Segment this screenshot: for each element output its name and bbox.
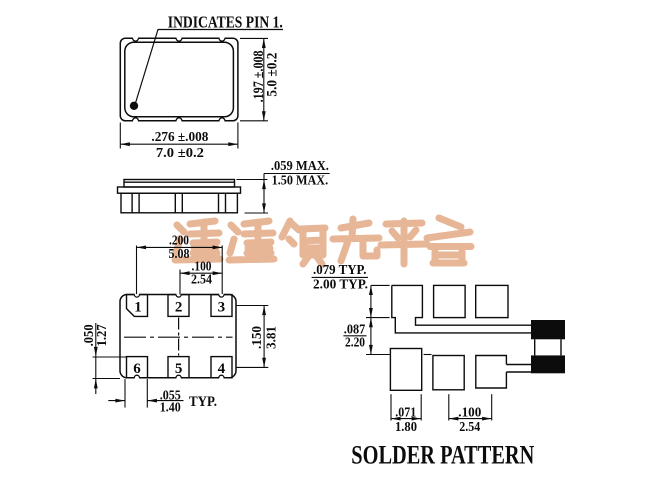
svg-text:1.50 MAX.: 1.50 MAX. [272,174,329,189]
svg-text:1.27: 1.27 [94,324,109,346]
svg-text:SOLDER PATTERN: SOLDER PATTERN [351,440,534,469]
svg-text:TYP.: TYP. [189,394,217,410]
svg-text:7.0 ±0.2: 7.0 ±0.2 [156,145,204,160]
svg-text:.079 TYP.: .079 TYP. [313,263,367,278]
svg-text:.276 ±.008: .276 ±.008 [151,129,208,144]
svg-text:2: 2 [175,300,183,316]
svg-text:5.0 ±0.2: 5.0 ±0.2 [265,53,281,97]
svg-text:.059 MAX.: .059 MAX. [271,159,329,174]
svg-text:5.08: 5.08 [169,246,190,261]
svg-text:2.54: 2.54 [191,272,212,287]
svg-text:2.20: 2.20 [345,334,365,349]
svg-text:2.54: 2.54 [459,419,480,434]
svg-text:5: 5 [175,361,183,377]
svg-text:.071: .071 [395,405,416,420]
svg-text:.150: .150 [249,326,264,349]
svg-text:1.40: 1.40 [160,399,181,414]
svg-text:2.00 TYP.: 2.00 TYP. [313,277,368,292]
svg-text:3: 3 [218,300,226,316]
svg-text:6: 6 [133,361,141,377]
svg-text:4: 4 [218,361,226,377]
svg-text:.100: .100 [458,405,481,420]
svg-text:INDICATES PIN 1.: INDICATES PIN 1. [168,12,283,31]
svg-text:1: 1 [134,300,142,316]
svg-text:1.80: 1.80 [395,419,417,434]
svg-text:3.81: 3.81 [263,326,278,349]
